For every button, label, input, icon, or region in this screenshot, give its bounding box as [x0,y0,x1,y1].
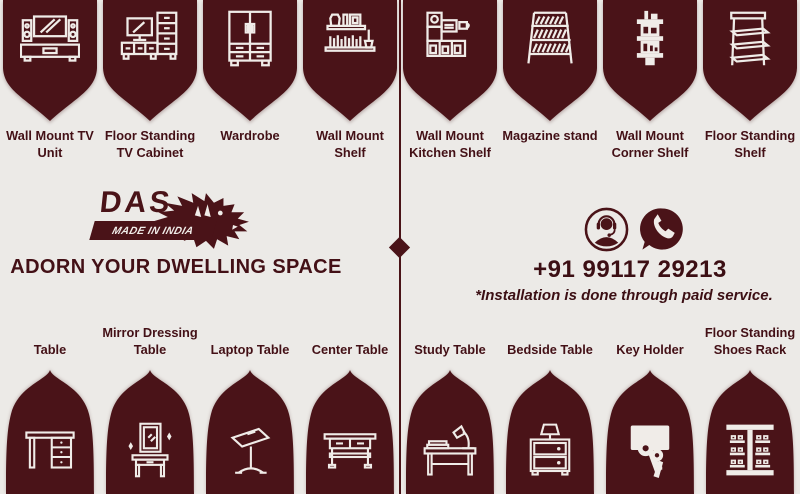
made-in-india-label: MADE IN INDIA [111,225,195,237]
category-label: Magazine stand [500,127,600,144]
floor-standing-shoes-rack-icon [722,422,778,478]
bedside-table-icon [522,422,578,478]
category-center-table: Center Table [300,341,400,494]
whatsapp-phone-icon [639,206,686,253]
pennant-badge [103,0,197,122]
wall-mount-corner-shelf-icon [620,9,680,69]
category-label: Floor Standing Shoes Rack [700,324,800,358]
floor-standing-tv-cabinet-icon [120,9,180,69]
center-table-icon [322,422,378,478]
pennant-badge [703,0,797,122]
dome-badge [106,370,194,494]
contact-icons [583,206,686,253]
category-label: Wall Mount Corner Shelf [600,127,700,161]
dome-badge [606,370,694,494]
category-label: Laptop Table [200,341,300,358]
wall-mount-tv-unit-icon [20,9,80,69]
pennant-badge [603,0,697,122]
category-label: Mirror Dressing Table [100,324,200,358]
made-in-india-banner: MADE IN INDIA [89,221,216,240]
category-floor-standing-shelf: Floor Standing Shelf [700,0,800,161]
tagline: ADORN YOUR DWELLING SPACE [0,256,352,279]
magazine-stand-icon [520,9,580,69]
dome-badge [406,370,494,494]
category-magazine-stand: Magazine stand [500,0,600,161]
category-label: Study Table [400,341,500,358]
bottom-category-row: Table Mirror Dressing Table [0,324,800,494]
mirror-dressing-table-icon [122,422,178,478]
category-mirror-dressing-table: Mirror Dressing Table [100,324,200,494]
category-label: Floor Standing Shelf [700,127,800,161]
category-label: Wall Mount Kitchen Shelf [400,127,500,161]
category-study-table: Study Table [400,341,500,494]
dome-badge [706,370,794,494]
dome-badge [506,370,594,494]
category-wall-mount-tv-unit: Wall Mount TV Unit [0,0,100,161]
customer-care-icon [583,206,630,253]
dome-badge [206,370,294,494]
key-holder-icon [622,422,678,478]
pennant-badge [303,0,397,122]
category-label: Floor Standing TV Cabinet [100,127,200,161]
study-table-icon [422,422,478,478]
category-bedside-table: Bedside Table [500,341,600,494]
wardrobe-icon [220,9,280,69]
category-label: Bedside Table [500,341,600,358]
pennant-badge [203,0,297,122]
divider-diamond [389,237,410,258]
wall-mount-kitchen-shelf-icon [420,9,480,69]
category-table: Table [0,341,100,494]
category-label: Wardrobe [200,127,300,144]
category-label: Table [0,341,100,358]
pennant-badge [503,0,597,122]
brand-logo: DAS MADE IN INDIA [92,190,257,254]
pennant-badge [403,0,497,122]
category-floor-standing-tv-cabinet: Floor Standing TV Cabinet [100,0,200,161]
category-laptop-table: Laptop Table [200,341,300,494]
dome-badge [306,370,394,494]
wall-mount-shelf-icon [320,9,380,69]
floor-standing-shelf-icon [720,9,780,69]
category-wall-mount-corner-shelf: Wall Mount Corner Shelf [600,0,700,161]
installation-note: *Installation is done through paid servi… [448,287,800,304]
table-icon [22,422,78,478]
phone-number: +91 99117 29213 [470,256,790,284]
category-wall-mount-shelf: Wall Mount Shelf [300,0,400,161]
category-wall-mount-kitchen-shelf: Wall Mount Kitchen Shelf [400,0,500,161]
logo-text: DAS [98,188,173,218]
category-key-holder: Key Holder [600,341,700,494]
category-wardrobe: Wardrobe [200,0,300,161]
top-category-row: Wall Mount TV Unit Floor Standing TV Cab… [0,0,800,161]
category-label: Center Table [300,341,400,358]
dome-badge [6,370,94,494]
pennant-badge [3,0,97,122]
category-label: Wall Mount Shelf [300,127,400,161]
furniture-flyer: Wall Mount TV Unit Floor Standing TV Cab… [0,0,800,494]
laptop-table-icon [222,422,278,478]
category-label: Key Holder [600,341,700,358]
category-label: Wall Mount TV Unit [0,127,100,161]
category-floor-standing-shoes-rack: Floor Standing Shoes Rack [700,324,800,494]
